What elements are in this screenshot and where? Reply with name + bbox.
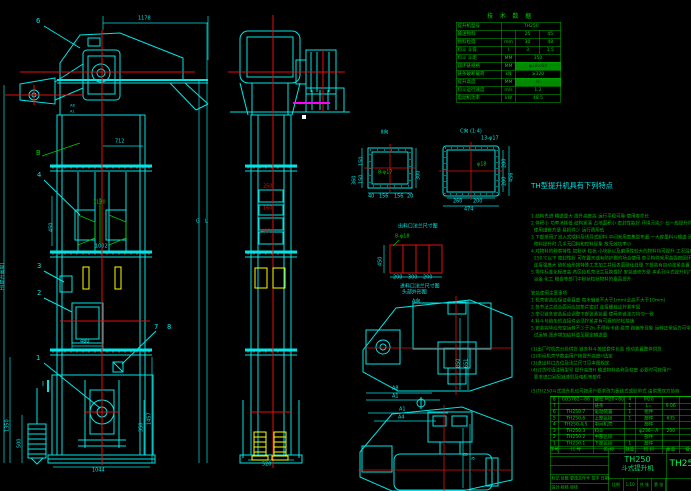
- inlet-flange-caption: 进料口法兰尺寸图: [400, 284, 440, 289]
- tech-table: 提升机型号TH250 输送物料2545 物料粒度mm3048 料斗 斗容l31.…: [456, 22, 561, 103]
- note-line: (2)中间机壳节数由用户按提升高度H选定: [531, 353, 691, 360]
- note-line: [531, 381, 691, 388]
- dim-a300: 300: [408, 275, 417, 280]
- balloon-8: 8: [167, 324, 171, 331]
- detail-II-label: Ⅱ向: [381, 130, 388, 135]
- detail-C-note: 13-φ17: [481, 136, 499, 141]
- note-line: 试运转 逐步增加给料量至额定输送量: [531, 332, 691, 339]
- note-line: 使用维修方便 易损件少 运行费用低: [531, 227, 691, 234]
- bom-row: 7 链条 1 L= 9.06: [551, 403, 691, 409]
- bom-row: 6 TH250.7 驱动装置 1 组件: [551, 409, 691, 415]
- outlet-flange-dims: [384, 240, 442, 277]
- tech-table-title: 技 术 数 据: [487, 11, 534, 20]
- dim-712: 712: [115, 139, 124, 144]
- balloon-2: 2: [37, 290, 41, 297]
- drawing-number: TH250: [667, 449, 691, 479]
- scale-label: 比例: [609, 479, 623, 491]
- dim-qB: B: [464, 453, 469, 456]
- note-line: 3.牵引链条安装后应调整下部张紧装置 使两条链张力均匀一致: [531, 311, 691, 318]
- detail-flange-small-centerlines: [364, 144, 416, 192]
- note-line: (5)TH250斗式提升机也可按用户要求改为板链式或胶带式 由供需双方协商: [531, 388, 691, 395]
- title-block-name-area: TH250 斗式提升机 比例 1:10 共 张 第 张: [609, 449, 667, 491]
- dim-base-1044: 1044: [92, 468, 105, 473]
- plan-view-head: [363, 300, 512, 400]
- note-line: 5.安装完毕应先空运转不少于2h 不得有卡链 碰壳 跑偏等现象 运转正常后方可带…: [531, 325, 691, 332]
- dim-400: 400: [261, 229, 270, 234]
- scale-value: 1:10: [623, 479, 637, 491]
- note-line: 2.各节法兰结合面间应加垫片密封 连接螺栓应拧紧牢固: [531, 304, 691, 311]
- dim-a200a: 200: [393, 275, 402, 280]
- datum-B: B: [36, 150, 41, 157]
- cad-canvas: 1178 712 450 1130 1002 480 1044 1350 500…: [0, 0, 691, 491]
- dim-qa: a: [471, 457, 476, 460]
- dim-f20: 20: [407, 194, 413, 199]
- note-line: (1)出厂时机壳分段供货 链条料斗按成套件包装 传动装置整体供货: [531, 346, 691, 353]
- title-block: 标记 处数 更改文件号 签字 日期 设计 校核 审核 TH250 斗式提升机 比…: [550, 448, 691, 491]
- outlet-flange-title: 出料口法兰尺寸图: [398, 224, 438, 229]
- bom-row: 5 TH250.6 上部区段 1 部件 635: [551, 415, 691, 421]
- dim-p651: 651: [464, 359, 469, 368]
- note-line: 物料提升时 几乎无回料和挖料现象 故无效功率小: [531, 241, 691, 248]
- dim-c200a: 200: [502, 159, 507, 168]
- front-view-dimensions: [4, 16, 208, 467]
- plan-view-drive-centerlines: [358, 405, 512, 491]
- bom-row: 2 TH250.2 中部区段 部件: [551, 434, 691, 440]
- dim-p850: 850: [456, 359, 461, 368]
- dim-qA4: A4: [398, 415, 405, 420]
- outlet-flange-note: 8-φ18: [395, 234, 410, 239]
- dim-f150a: 150: [359, 157, 364, 166]
- note-line: (4)订货时请注明型号 提升高度H 输送物料名称及粒度 必要时可按用户: [531, 367, 691, 374]
- signature-labels: 设计 校核 审核: [551, 483, 609, 491]
- features-title: TH型提升机具有下列特点: [531, 180, 613, 190]
- bom-row: 1 TH250.1 下部区段 1 部件: [551, 440, 691, 446]
- dim-bucket-pitch-1130: 1130: [93, 200, 106, 205]
- front-view: [20, 26, 208, 464]
- dim-f156b: 156: [394, 194, 403, 199]
- dim-total-height: H(提升高度): [0, 263, 5, 290]
- note-line: 4.对物料的种类特性 如粉状 粒状 小块状以及磨琢性较大的物料均可提升 工况温度…: [531, 248, 691, 255]
- dim-inlet-480: 480: [80, 339, 89, 344]
- detail-flange-large: [443, 146, 509, 206]
- dim-G: G: [196, 219, 200, 224]
- sheet-count: 共 张: [638, 479, 652, 491]
- dim-A1: A1: [70, 110, 75, 114]
- selection-grip[interactable]: [302, 115, 306, 119]
- dim-350: 350: [139, 423, 144, 432]
- bom-table: 8 GB5782—86 螺栓 M20×80 4 M20 7 链条 1 L= 9.…: [550, 396, 691, 453]
- detail-C-label: C向 (1:4): [460, 129, 482, 134]
- dim-L: L: [205, 219, 208, 224]
- title-block-number-area: TH250: [667, 449, 691, 491]
- side-view-takeup-yellow: [252, 268, 288, 460]
- note-line: 1.结构先进 输送量大 提升高度高 运行平稳可靠 使用寿命长: [531, 213, 691, 220]
- dim-a450: 450: [378, 257, 383, 266]
- note-line: 冶金 化工 粮食等部门中粉状粒状物料的垂直提升: [531, 276, 691, 283]
- dim-500: 500: [17, 439, 22, 448]
- balloon-4: 4: [37, 172, 41, 179]
- dim-1350: 1350: [5, 419, 10, 432]
- bom-row: 8 GB5782—86 螺栓 M20×80 4 M20: [551, 397, 691, 403]
- balloon-3: 3: [37, 263, 41, 270]
- dim-A8: A8: [70, 104, 75, 108]
- dim-boot-520: 520: [262, 462, 271, 467]
- dim-c200: 200: [473, 199, 482, 204]
- dim-250: 250: [263, 184, 272, 189]
- balloon-7: 7: [154, 324, 158, 331]
- revision-labels: 标记 处数 更改文件号 签字 日期: [551, 474, 609, 483]
- detail-C-inner-note: φ18: [477, 162, 487, 167]
- dim-a200b: 200: [423, 275, 432, 280]
- note-line: 2.体积小 功率消耗低 结构紧凑 占地面积小 密封性能好 环境污染少 比一般提升…: [531, 220, 691, 227]
- note-line: [531, 283, 691, 290]
- detail-II-note: 8-φ17: [378, 170, 393, 175]
- dim-1457: 1457: [147, 412, 152, 425]
- note-line: (3)进出料口方位及法兰尺寸见本图规定: [531, 360, 691, 367]
- features-notes: 1.结构先进 输送量大 提升高度高 运行平稳可靠 使用寿命长2.体积小 功率消耗…: [531, 192, 691, 395]
- dim-pA1: A1: [392, 394, 399, 399]
- dim-pA8: A8: [392, 386, 399, 391]
- dim-f360: 360: [352, 176, 357, 185]
- product-model: TH250: [624, 455, 650, 463]
- dim-f150b: 150: [359, 175, 364, 184]
- dim-c260: 260: [453, 199, 462, 204]
- bom-row: 3 TH250.3 料斗 φ236—A 200: [551, 428, 691, 434]
- dim-c200b: 200: [502, 177, 507, 186]
- dim-c456: 456: [509, 173, 514, 182]
- dim-f300: 300: [416, 171, 421, 180]
- note-line: 1.机壳安装应保证垂直度 每米偏差不大于1mm(全高不大于10mm): [531, 297, 691, 304]
- product-name: 斗式提升机: [621, 465, 654, 472]
- dim-1002: 1002: [95, 244, 108, 249]
- plan-head-title: 头部外形图: [402, 290, 427, 295]
- sheet-number: 第 张: [652, 479, 666, 491]
- balloon-1: 1: [36, 355, 40, 362]
- plan-head-sub: A向: [412, 299, 420, 304]
- balloon-6: 6: [36, 18, 40, 25]
- note-line: 3.下部采用了流入式喂料及诱导式卸料 中间采用密集型布置 一大容量料斗输送 因而…: [531, 234, 691, 241]
- dim-160: 160: [263, 206, 272, 211]
- section-mark-I: Ⅰ: [42, 381, 44, 388]
- note-line: 要求进口另配减速机及电机等部件: [531, 374, 691, 381]
- dim-450: 450: [49, 223, 54, 232]
- side-view: [230, 31, 350, 463]
- dim-head-width: 1178: [138, 16, 151, 21]
- detail-flange-large-centerlines: [439, 142, 503, 200]
- note-line: [531, 339, 691, 346]
- title-block-revision-area: 标记 处数 更改文件号 签字 日期 设计 校核 审核: [551, 449, 610, 491]
- dim-f156a: 156: [379, 194, 388, 199]
- plan-view-drive: [360, 397, 512, 491]
- note-line: 4.料斗与链条的连接件必须拧紧并有可靠的防松措施: [531, 318, 691, 325]
- note-line: 连接强度大 链轮齿形按特殊工艺加工并经表面硬化处理 下部装有自动张紧装置: [531, 262, 691, 269]
- front-view-green: [42, 143, 126, 245]
- bom-row: 4 TH250.4,5 中间机壳 部件: [551, 422, 691, 428]
- note-line: 5.零件标准化程度高 各区段机壳法兰互换性好 安装维修方便 本系列斗式提升机广泛…: [531, 269, 691, 276]
- dim-c474: 474: [464, 207, 473, 212]
- outlet-flange-grid: [390, 245, 442, 273]
- note-line: 250℃以下 密封性好 可在露天或有防护棚的场合使用 牵引构件采用高强度圆环链 …: [531, 255, 691, 262]
- dim-qA1: A1: [399, 407, 406, 412]
- dim-f40a: 40: [368, 194, 374, 199]
- note-line: 安装使用注意事项: [531, 290, 691, 297]
